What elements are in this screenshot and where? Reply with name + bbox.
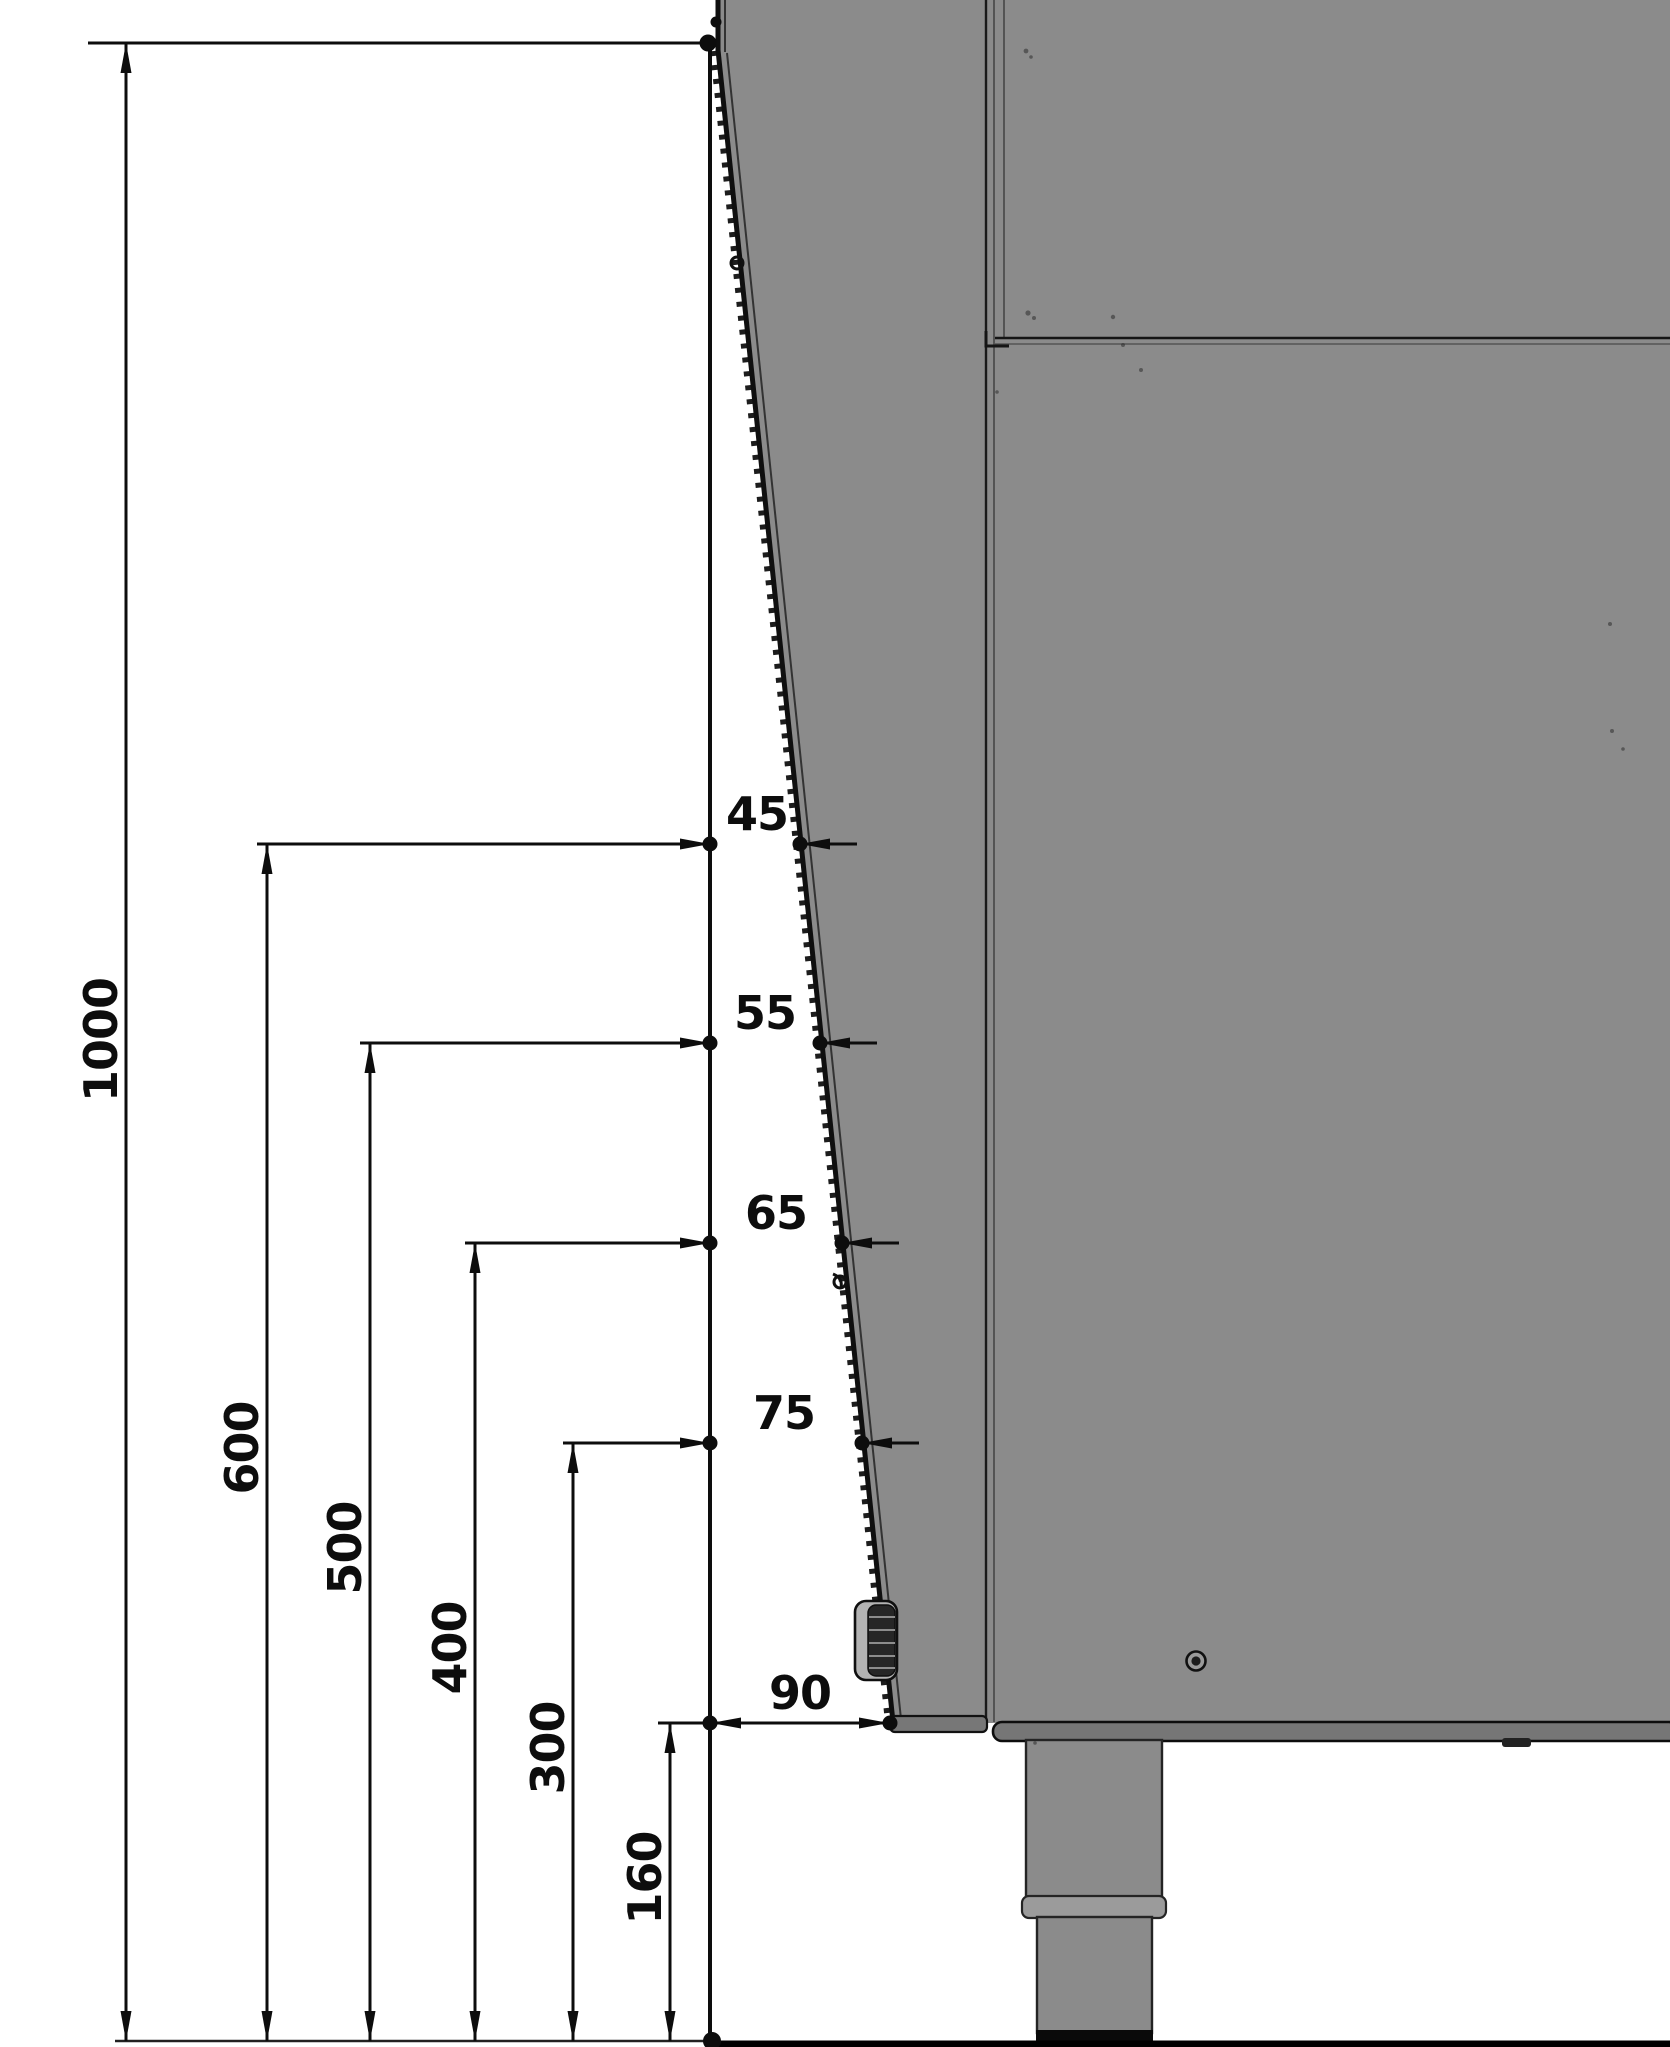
rear-tab bbox=[1502, 1738, 1531, 1747]
dim-label-90: 90 bbox=[769, 1666, 831, 1720]
machine-body bbox=[714, 0, 1670, 2043]
dim-label-75: 75 bbox=[753, 1386, 815, 1440]
dim-label-45: 45 bbox=[726, 787, 788, 841]
latch-knob bbox=[855, 1601, 897, 1680]
dim-label-600: 600 bbox=[215, 1401, 269, 1494]
dim-label-55: 55 bbox=[734, 986, 796, 1040]
dim-label-160: 160 bbox=[618, 1831, 672, 1924]
leg-column bbox=[1026, 1740, 1162, 1902]
body-silhouette bbox=[718, 0, 1670, 1723]
extension-lines bbox=[88, 43, 710, 1723]
dim-label-1000: 1000 bbox=[74, 978, 128, 1102]
dim-label-65: 65 bbox=[745, 1186, 807, 1240]
leg-lip bbox=[1022, 1896, 1166, 1918]
dim-label-300: 300 bbox=[521, 1701, 575, 1794]
door-bottom-band bbox=[890, 1716, 987, 1732]
cabinet-bottom-bar bbox=[993, 1722, 1670, 1741]
down-arrowheads bbox=[121, 2011, 676, 2041]
drawing-canvas: 1000 600 500 400 300 160 45 55 65 75 90 bbox=[0, 0, 1670, 2047]
ground-line bbox=[115, 2041, 1670, 2044]
dim-label-500: 500 bbox=[318, 1501, 372, 1594]
dim-label-400: 400 bbox=[423, 1601, 477, 1694]
vent-hole bbox=[1187, 1652, 1206, 1671]
adjustable-foot bbox=[1037, 1917, 1152, 2033]
dimension-drawing: 1000 600 500 400 300 160 45 55 65 75 90 bbox=[0, 0, 1670, 2047]
up-arrowheads bbox=[121, 43, 676, 1753]
leg bbox=[1022, 1740, 1166, 2043]
